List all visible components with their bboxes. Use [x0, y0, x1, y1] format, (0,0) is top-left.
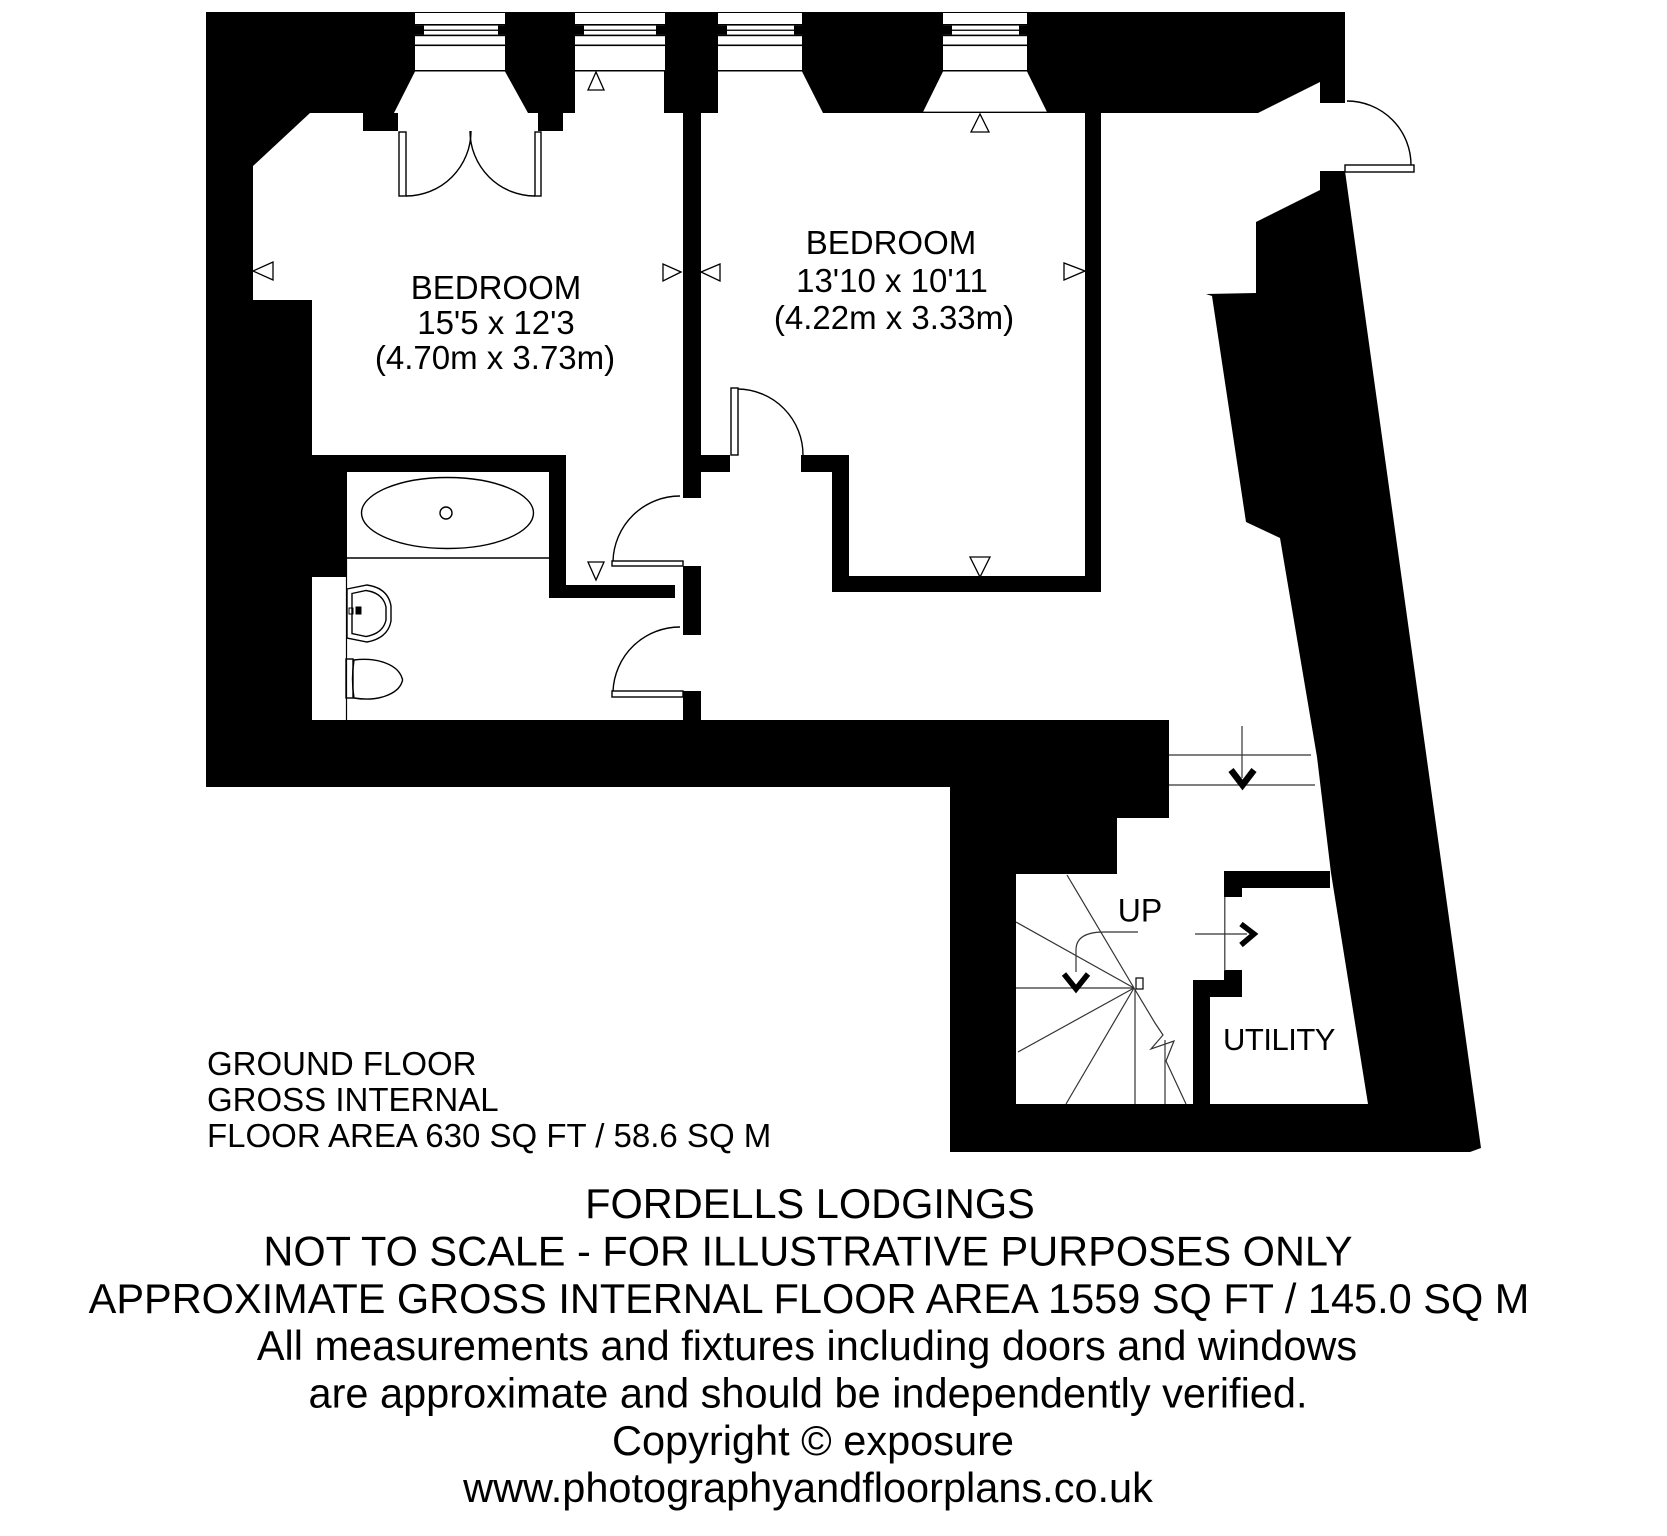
svg-text:FLOOR AREA 630 SQ FT / 58.6 SQ: FLOOR AREA 630 SQ FT / 58.6 SQ M — [207, 1117, 771, 1154]
svg-text:(4.70m x 3.73m): (4.70m x 3.73m) — [375, 339, 615, 376]
svg-text:FORDELLS LODGINGS: FORDELLS LODGINGS — [585, 1180, 1035, 1227]
svg-text:BEDROOM: BEDROOM — [806, 224, 977, 261]
svg-text:www.photographyandfloorplans.c: www.photographyandfloorplans.co.uk — [462, 1464, 1153, 1511]
svg-text:All measurements and fixtures: All measurements and fixtures including … — [257, 1322, 1357, 1369]
svg-text:UP: UP — [1118, 893, 1162, 929]
svg-text:Copyright © exposure: Copyright © exposure — [612, 1417, 1014, 1464]
svg-text:APPROXIMATE GROSS INTERNAL FLO: APPROXIMATE GROSS INTERNAL FLOOR AREA 15… — [89, 1275, 1530, 1322]
svg-text:NOT TO SCALE - FOR ILLUSTRATIV: NOT TO SCALE - FOR ILLUSTRATIVE PURPOSES… — [263, 1228, 1352, 1275]
svg-text:15'5 x 12'3: 15'5 x 12'3 — [417, 304, 575, 341]
svg-text:GROUND FLOOR: GROUND FLOOR — [207, 1045, 477, 1082]
svg-text:are approximate and should be: are approximate and should be independen… — [309, 1370, 1308, 1417]
svg-text:UTILITY: UTILITY — [1223, 1022, 1335, 1057]
svg-text:GROSS INTERNAL: GROSS INTERNAL — [207, 1081, 499, 1118]
svg-text:(4.22m x 3.33m): (4.22m x 3.33m) — [774, 299, 1014, 336]
svg-text:13'10 x 10'11: 13'10 x 10'11 — [796, 262, 988, 299]
svg-text:BEDROOM: BEDROOM — [411, 269, 582, 306]
